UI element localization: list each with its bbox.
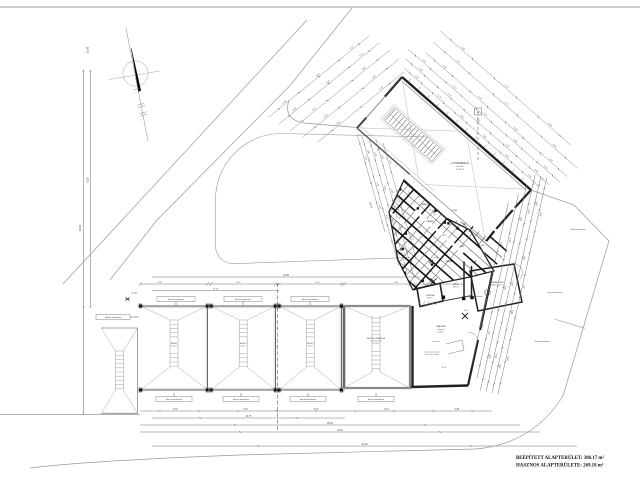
- svg-text:HASZNOS ALAPTERÜLETE: 269.18 m: HASZNOS ALAPTERÜLETE: 269.18 m²: [516, 463, 604, 469]
- svg-text:TRANZIT: TRANZIT: [421, 203, 430, 206]
- svg-text:6,70: 6,70: [243, 409, 248, 411]
- svg-text:lépcső szerkezete: lépcső szerkezete: [166, 398, 183, 401]
- svg-text:0,16: 0,16: [384, 409, 389, 411]
- svg-text:á tükörrel: á tükörrel: [432, 340, 440, 343]
- svg-text:burkolat: burkolat: [456, 165, 464, 168]
- svg-text:bérmunka kiadás: bérmunka kiadás: [425, 354, 439, 356]
- svg-text:lépcső szerkezete: lépcső szerkezete: [300, 398, 317, 401]
- svg-text:AUTÓSZERELŐ: AUTÓSZERELŐ: [451, 162, 469, 165]
- svg-text:13,75: 13,75: [213, 289, 219, 291]
- svg-text:lépcső szerkezete: lépcső szerkezete: [368, 398, 385, 401]
- svg-text:+45,80: +45,80: [131, 293, 138, 295]
- svg-text:6,70: 6,70: [173, 409, 178, 411]
- svg-text:KÖZL: KÖZL: [452, 209, 458, 212]
- svg-text:lépcső szerkezete: lépcső szerkezete: [233, 398, 250, 401]
- svg-text:17,16 m²: 17,16 m²: [170, 345, 177, 348]
- svg-text:52,81 m²: 52,81 m²: [437, 331, 444, 334]
- svg-text:+0,15: +0,15: [464, 310, 469, 312]
- svg-text:17,16 m²: 17,16 m²: [307, 345, 314, 348]
- svg-text:RAKTÁR: RAKTÁR: [437, 325, 446, 328]
- svg-text:lépcső szerkezete: lépcső szerkezete: [235, 298, 252, 301]
- svg-text:ZUH: ZUH: [460, 246, 465, 248]
- svg-text:FEHÉR: FEHÉR: [427, 220, 434, 223]
- svg-text:lépcső szerkezete: lépcső szerkezete: [105, 316, 122, 319]
- svg-text:lépcső szerkezete: lépcső szerkezete: [547, 291, 562, 294]
- svg-text:16,08: 16,08: [283, 275, 289, 277]
- svg-text:6,55: 6,55: [86, 177, 89, 182]
- svg-text:SZEMÉLYZETI: SZEMÉLYZETI: [490, 281, 504, 284]
- svg-text:MO: MO: [481, 245, 485, 247]
- svg-text:lépcső szerkezete: lépcső szerkezete: [534, 340, 549, 343]
- svg-text:29,04: 29,04: [337, 430, 343, 432]
- svg-text:KAZÁN: KAZÁN: [446, 260, 453, 263]
- svg-text:25,04: 25,04: [327, 423, 333, 425]
- svg-text:WC: WC: [468, 231, 472, 233]
- svg-text:lépcső szerkezete: lépcső szerkezete: [168, 298, 185, 301]
- svg-text:31,08: 31,08: [362, 444, 368, 446]
- svg-text:G: G: [477, 110, 479, 114]
- svg-text:6,70: 6,70: [314, 409, 319, 411]
- svg-text:765 lit.: 765 lit.: [441, 366, 447, 369]
- svg-text:BEÉPÍTETT ALAPTERÜLET: 306.17: BEÉPÍTETT ALAPTERÜLET: 306.17 m²: [516, 455, 605, 461]
- svg-text:lépcső szerkezete: lépcső szerkezete: [570, 228, 585, 231]
- svg-text:62,24 m²: 62,24 m²: [372, 342, 379, 345]
- svg-text:72,31 m²: 72,31 m²: [456, 168, 464, 171]
- svg-text:±0,00: ±0,00: [434, 257, 440, 259]
- svg-text:lépcső szerkezete: lépcső szerkezete: [467, 295, 482, 298]
- svg-text:17,16 m²: 17,16 m²: [240, 345, 247, 348]
- svg-text:6,30 m²: 6,30 m²: [427, 297, 433, 300]
- svg-text:KONYHA: KONYHA: [426, 294, 435, 297]
- svg-text:13,75: 13,75: [246, 416, 252, 418]
- svg-text:11,93: 11,93: [85, 46, 89, 53]
- svg-text:2,28: 2,28: [455, 409, 460, 411]
- svg-text:4,05 m²: 4,05 m²: [453, 286, 459, 289]
- svg-text:+45,80: +45,80: [457, 284, 464, 286]
- svg-text:lépcső szerkezete: lépcső szerkezete: [302, 298, 319, 301]
- svg-text:24,30: 24,30: [78, 224, 82, 231]
